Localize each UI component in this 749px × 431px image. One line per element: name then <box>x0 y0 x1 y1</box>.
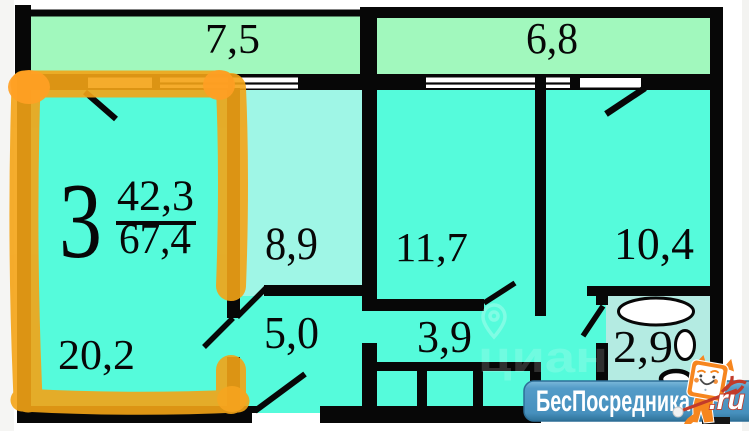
svg-text:10,4: 10,4 <box>614 218 694 269</box>
svg-text:5,0: 5,0 <box>264 307 319 358</box>
svg-text:БесПосредника: БесПосредника <box>536 385 690 418</box>
svg-text:циан: циан <box>478 333 608 382</box>
svg-text:8,9: 8,9 <box>265 218 318 270</box>
svg-text:67,4: 67,4 <box>119 216 191 263</box>
svg-text:3,9: 3,9 <box>417 311 472 362</box>
svg-text:3: 3 <box>59 162 102 281</box>
svg-text:7,5: 7,5 <box>205 17 260 63</box>
svg-text:11,7: 11,7 <box>395 224 468 270</box>
svg-text:2,9: 2,9 <box>613 321 673 372</box>
svg-text:6,8: 6,8 <box>526 14 578 63</box>
svg-text:20,2: 20,2 <box>58 333 135 379</box>
svg-text:.ru: .ru <box>709 384 745 415</box>
svg-text:42,3: 42,3 <box>117 173 194 220</box>
